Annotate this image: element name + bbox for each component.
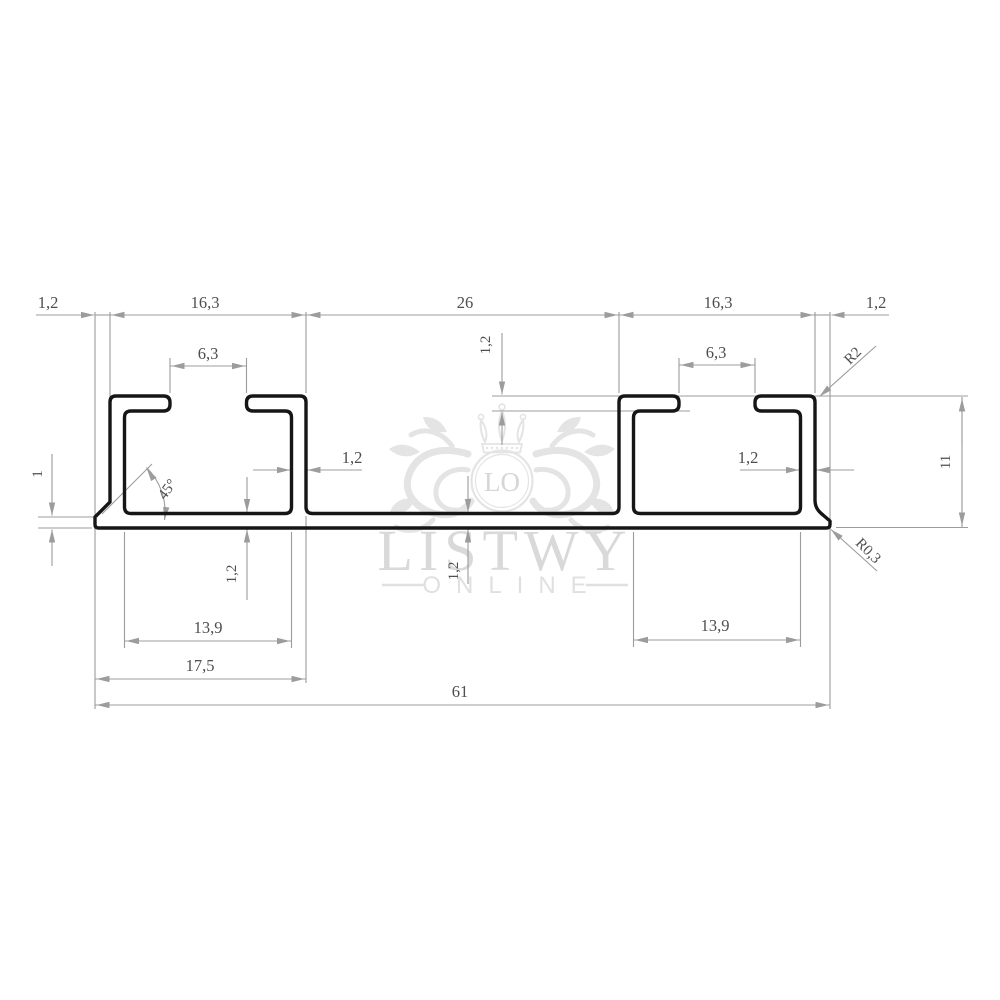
dim-total-width: 61: [452, 682, 469, 701]
technical-drawing-page: LO LISTWY ONLINE: [0, 0, 1000, 1000]
watermark-logo: LO LISTWY ONLINE: [377, 404, 632, 599]
dim-right-wall-thickness: 1,2: [738, 448, 759, 467]
dim-top-right-foot: 1,2: [866, 293, 887, 312]
dim-chamfer-angle: 45°: [155, 476, 180, 502]
dim-top-left-foot: 1,2: [38, 293, 59, 312]
dim-top-right-channel: 16,3: [704, 293, 733, 312]
dim-left-section-width: 17,5: [186, 656, 215, 675]
dim-lip-thickness: 1,2: [478, 336, 494, 355]
profile-drawing: LO LISTWY ONLINE: [0, 0, 1000, 1000]
dim-top-left-channel: 16,3: [191, 293, 220, 312]
dim-top-corner-radius: R2: [841, 344, 865, 368]
dim-left-edge-height: 1: [30, 470, 46, 478]
dim-right-opening: 6,3: [706, 343, 727, 362]
dim-left-opening: 6,3: [198, 344, 219, 363]
dim-left-inner-width: 13,9: [194, 618, 223, 637]
dim-bottom-corner-radius: R0,3: [852, 535, 884, 567]
dim-right-inner-width: 13,9: [701, 616, 730, 635]
dim-profile-height: 11: [938, 455, 954, 469]
dim-left-wall-thickness: 1,2: [342, 448, 363, 467]
dim-top-center-gap: 26: [457, 293, 474, 312]
dim-left-base-thickness: 1,2: [224, 565, 240, 584]
watermark-monogram: LO: [484, 467, 520, 497]
dimension-lines: [36, 315, 962, 705]
dim-center-base-thickness: 1,2: [446, 562, 462, 581]
